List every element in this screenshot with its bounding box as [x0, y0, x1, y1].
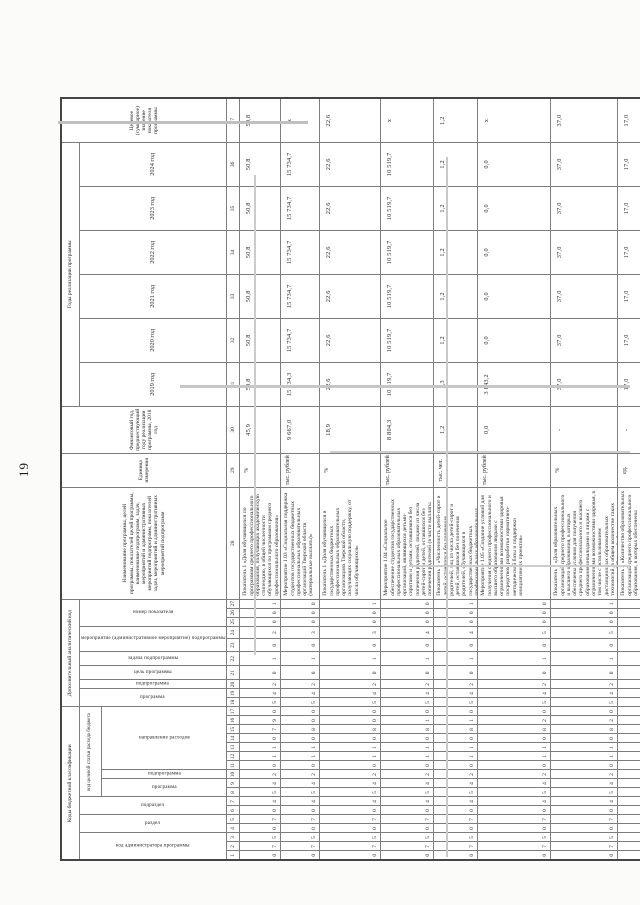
row-value-2018: 8 804,3: [381, 406, 434, 453]
row-name-text: Мероприятие 1.04 «Социальное обеспечение…: [381, 488, 433, 599]
code-digit-cell: 0: [320, 666, 381, 680]
code-digit-cell: 2: [618, 770, 640, 779]
row-value-2023: 17,0: [618, 186, 640, 230]
header-year-2021: 2021 год: [79, 274, 227, 318]
header-article-direction: направление расходов: [102, 707, 227, 770]
code-digit-cell: 5: [478, 698, 551, 707]
code-digit-cell: 8: [434, 725, 478, 734]
row-value-2018: 0,0: [478, 406, 551, 453]
row-unit-cell: тыс. рублей: [281, 453, 320, 487]
code-digit-cell: 1: [320, 652, 381, 666]
code-digit-cell: 0: [281, 599, 320, 608]
code-digit-cell: 7: [240, 725, 281, 734]
code-digit-cell: 7: [320, 842, 381, 851]
code-digit-cell: 0: [618, 734, 640, 743]
code-digit-cell: 0: [381, 851, 434, 860]
header-year-2020: 2020 год: [79, 318, 227, 362]
row-value-2021: 50,8: [240, 274, 281, 318]
column-number: 33: [227, 274, 240, 318]
column-number: 7: [227, 797, 240, 806]
code-digit-cell: 5: [618, 698, 640, 707]
column-number: 17: [227, 707, 240, 716]
header-analytic-indicator-number: номер показателя: [79, 599, 227, 626]
code-digit-cell: 0: [240, 851, 281, 860]
code-digit-cell: 1: [478, 743, 551, 752]
rotated-scan-page: 19 Коды бюджетной классификацииДополните…: [0, 0, 640, 905]
row-name-cell: Показатель 1 «Доля образовательных орган…: [551, 487, 618, 599]
row-unit-cell: %: [551, 453, 618, 487]
code-digit-cell: 4: [618, 797, 640, 806]
code-digit-cell: 5: [434, 833, 478, 842]
column-number: 14: [227, 734, 240, 743]
row-name-cell: Показатель 1 «Численность детей-сирот и …: [434, 487, 478, 599]
column-number: 21: [227, 666, 240, 680]
code-digit-cell: 0: [551, 707, 618, 716]
column-number: 20: [227, 680, 240, 689]
code-digit-cell: 4: [240, 689, 281, 698]
code-digit-cell: 0: [551, 824, 618, 833]
column-number: 12: [227, 752, 240, 761]
column-number: 25: [227, 617, 240, 626]
header-analytic-subprogram: подпрограмма: [79, 680, 227, 689]
header-admin-code: код администратора программы: [79, 833, 227, 860]
column-number: 8: [227, 788, 240, 797]
header-target-article-group: код целевой статьи расхода бюджета: [79, 707, 102, 797]
header-analytic-goal: цель программы: [79, 666, 227, 680]
column-number: 4: [227, 824, 240, 833]
code-digit-cell: 0: [381, 666, 434, 680]
row-unit-cell: %: [320, 453, 381, 487]
row-unit-cell: тыс. рублей: [478, 453, 551, 487]
row-value-2020: 37,0: [551, 318, 618, 362]
row-value-2024: 1,2: [434, 142, 478, 186]
code-digit-cell: 0: [478, 851, 551, 860]
row-value-2021: 0,0: [478, 274, 551, 318]
code-digit-cell: 0: [320, 761, 381, 770]
code-digit-cell: 4: [320, 797, 381, 806]
column-number: 24: [227, 626, 240, 639]
code-digit-cell: 0: [618, 608, 640, 617]
code-digit-cell: 4: [478, 689, 551, 698]
code-digit-cell: 0: [434, 617, 478, 626]
column-number: 3: [227, 833, 240, 842]
row-value-2023: 37,0: [551, 186, 618, 230]
header-unit-col: Единица измерения: [61, 453, 227, 487]
code-digit-cell: 0: [478, 734, 551, 743]
column-number: 19: [227, 689, 240, 698]
row-name-cell: Мероприятие 1.04 «Социальное обеспечение…: [381, 487, 434, 599]
row-name-text: Показатель 1 «Численность детей-сирот и …: [434, 488, 477, 599]
row-value-2019: 3 843,2: [478, 362, 551, 406]
row-value-2022: 15 734,7: [281, 230, 320, 274]
code-digit-cell: 5: [478, 626, 551, 639]
row-name-cell: Показатель 2 «Количество образовательных…: [618, 487, 640, 599]
row-value-2022: 0,0: [478, 230, 551, 274]
row-name-cell: Мероприятие 1.03 «Социальная поддержка с…: [281, 487, 320, 599]
code-digit-cell: 0: [618, 639, 640, 652]
code-digit-cell: 0: [320, 608, 381, 617]
row-value-2022: 17,0: [618, 230, 640, 274]
page-number: 19: [16, 462, 32, 477]
code-digit-cell: 0: [381, 639, 434, 652]
row-name-text: Мероприятие 1.03 «Социальная поддержка с…: [281, 488, 319, 599]
code-digit-cell: 2: [618, 680, 640, 689]
code-digit-cell: 2: [478, 770, 551, 779]
row-value-2019: 17,0: [618, 362, 640, 406]
code-digit-cell: 4: [618, 779, 640, 788]
row-value-2019: 37,0: [551, 362, 618, 406]
code-digit-cell: 7: [618, 842, 640, 851]
code-digit-cell: 0: [281, 608, 320, 617]
code-digit-cell: 5: [320, 833, 381, 842]
code-digit-cell: 0: [478, 806, 551, 815]
code-digit-cell: 7: [240, 842, 281, 851]
code-digit-cell: 2: [240, 626, 281, 639]
column-number: 31: [227, 362, 240, 406]
column-number: 11: [227, 761, 240, 770]
code-digit-cell: 0: [551, 617, 618, 626]
row-name-text: Показатель 2 «Количество образовательных…: [618, 488, 640, 599]
header-analytic-code-group: Дополнительный аналитический код: [61, 599, 79, 707]
header-analytic-program: программа: [79, 689, 227, 707]
code-digit-cell: 1: [618, 752, 640, 761]
code-digit-cell: 5: [240, 788, 281, 797]
code-digit-cell: 1: [551, 652, 618, 666]
row-value-2024: 10 519,7: [381, 142, 434, 186]
code-digit-cell: 9: [240, 716, 281, 725]
row-value-2022: 22,6: [320, 230, 381, 274]
code-digit-cell: 5: [551, 788, 618, 797]
code-digit-cell: 7: [240, 815, 281, 824]
code-digit-cell: 0: [551, 806, 618, 815]
row-unit-cell: %: [240, 453, 281, 487]
column-number: 13: [227, 743, 240, 752]
code-digit-cell: 0: [478, 639, 551, 652]
row-value-2022: 10 519,7: [381, 230, 434, 274]
code-digit-cell: 0: [320, 734, 381, 743]
row-value-2021: 22,6: [320, 274, 381, 318]
row-target-value: х: [381, 98, 434, 142]
row-value-2021: 17,0: [618, 274, 640, 318]
row-value-2021: 15 734,7: [281, 274, 320, 318]
code-digit-cell: 5: [434, 788, 478, 797]
header-analytic-activity: мероприятие (административное мероприяти…: [79, 626, 227, 651]
program-table-wrapper: Коды бюджетной классификацииДополнительн…: [60, 97, 640, 861]
code-digit-cell: 0: [320, 707, 381, 716]
row-target-value: 37,0: [551, 98, 618, 142]
code-digit-cell: 1: [434, 599, 478, 608]
code-digit-cell: 0: [381, 608, 434, 617]
row-value-2018: 18,9: [320, 406, 381, 453]
code-digit-cell: 0: [551, 639, 618, 652]
code-digit-cell: 1: [320, 743, 381, 752]
row-value-2020: 17,0: [618, 318, 640, 362]
row-target-value: х: [281, 98, 320, 142]
header-year-2024: 2024 год: [79, 142, 227, 186]
code-digit-cell: 1: [240, 599, 281, 608]
code-digit-cell: 2: [281, 680, 320, 689]
code-digit-cell: 4: [240, 779, 281, 788]
column-number: 26: [227, 608, 240, 617]
code-digit-cell: 2: [240, 770, 281, 779]
row-value-2022: 37,0: [551, 230, 618, 274]
code-digit-cell: 0: [478, 666, 551, 680]
code-digit-cell: 1: [240, 743, 281, 752]
code-digit-cell: 0: [240, 707, 281, 716]
code-digit-cell: 4: [281, 779, 320, 788]
code-digit-cell: 1: [281, 743, 320, 752]
code-digit-cell: 0: [281, 707, 320, 716]
row-value-2024: 17,0: [618, 142, 640, 186]
code-digit-cell: 5: [281, 833, 320, 842]
code-digit-cell: 8: [281, 725, 320, 734]
row-target-value: 22,6: [320, 98, 381, 142]
code-digit-cell: 2: [381, 770, 434, 779]
code-digit-cell: 5: [618, 833, 640, 842]
code-digit-cell: 0: [240, 734, 281, 743]
code-digit-cell: 5: [320, 788, 381, 797]
code-digit-cell: 1: [381, 752, 434, 761]
header-year-2019: 2019 год: [79, 362, 227, 406]
code-digit-cell: 0: [240, 666, 281, 680]
column-number: 28: [227, 487, 240, 599]
code-digit-cell: 4: [381, 779, 434, 788]
code-digit-cell: 2: [618, 716, 640, 725]
code-digit-cell: 5: [434, 698, 478, 707]
code-digit-cell: 0: [320, 617, 381, 626]
code-digit-cell: 5: [551, 698, 618, 707]
column-number: 30: [227, 406, 240, 453]
code-digit-cell: 4: [434, 626, 478, 639]
code-digit-cell: 2: [551, 716, 618, 725]
code-digit-cell: 2: [478, 680, 551, 689]
code-digit-cell: 0: [551, 666, 618, 680]
row-name-text: Показатель 1 «Доля обучающихся по програ…: [240, 488, 280, 599]
row-value-2024: 0,0: [478, 142, 551, 186]
column-number: 18: [227, 698, 240, 707]
code-digit-cell: 8: [478, 725, 551, 734]
code-digit-cell: 0: [618, 824, 640, 833]
header-article-program: программа: [102, 779, 227, 797]
code-digit-cell: 2: [434, 770, 478, 779]
code-digit-cell: 1: [551, 599, 618, 608]
code-digit-cell: 0: [240, 639, 281, 652]
row-value-2021: 10 519,7: [381, 274, 434, 318]
row-value-2020: 50,8: [240, 318, 281, 362]
code-digit-cell: 0: [320, 716, 381, 725]
code-digit-cell: 7: [478, 815, 551, 824]
code-digit-cell: 1: [618, 743, 640, 752]
code-digit-cell: 4: [320, 689, 381, 698]
code-digit-cell: 1: [434, 652, 478, 666]
code-digit-cell: 1: [240, 752, 281, 761]
code-digit-cell: 0: [434, 707, 478, 716]
code-digit-cell: 0: [281, 716, 320, 725]
code-digit-cell: 0: [240, 824, 281, 833]
code-digit-cell: 8: [381, 725, 434, 734]
code-digit-cell: 0: [281, 761, 320, 770]
row-value-2019: 50,8: [240, 362, 281, 406]
code-digit-cell: 2: [434, 680, 478, 689]
code-digit-cell: 3: [320, 626, 381, 639]
column-number: 9: [227, 779, 240, 788]
code-digit-cell: 4: [281, 689, 320, 698]
code-digit-cell: 0: [478, 617, 551, 626]
row-value-2023: 1,2: [434, 186, 478, 230]
code-digit-cell: 4: [478, 797, 551, 806]
code-digit-cell: 1: [478, 652, 551, 666]
code-digit-cell: 0: [320, 806, 381, 815]
row-name-cell: Мероприятие 1.05 «Создание условий для п…: [478, 487, 551, 599]
code-digit-cell: 7: [434, 842, 478, 851]
code-digit-cell: 0: [434, 666, 478, 680]
code-digit-cell: 0: [478, 599, 551, 608]
row-value-2023: 0,0: [478, 186, 551, 230]
code-digit-cell: 8: [320, 725, 381, 734]
code-digit-cell: 7: [281, 815, 320, 824]
code-digit-cell: 2: [320, 680, 381, 689]
code-digit-cell: 0: [381, 734, 434, 743]
row-target-value: х: [478, 98, 551, 142]
code-digit-cell: 0: [281, 639, 320, 652]
row-unit-cell: тыс. рублей: [381, 453, 434, 487]
header-year-2022: 2022 год: [79, 230, 227, 274]
code-digit-cell: 2: [381, 680, 434, 689]
header-years-group: Годы реализации программы: [61, 142, 79, 406]
row-unit-cell: тыс. чел.: [434, 453, 478, 487]
code-digit-cell: 5: [281, 698, 320, 707]
column-number: 32: [227, 318, 240, 362]
code-digit-cell: 5: [478, 788, 551, 797]
row-value-2019: 15 734,3: [281, 362, 320, 406]
header-podrazdel: подраздел: [79, 797, 227, 815]
code-digit-cell: 7: [281, 842, 320, 851]
code-digit-cell: 0: [281, 851, 320, 860]
code-digit-cell: 0: [551, 851, 618, 860]
code-digit-cell: 0: [320, 639, 381, 652]
row-value-2019: 10 519,7: [381, 362, 434, 406]
row-target-value: 50,8: [240, 98, 281, 142]
code-digit-cell: 1: [381, 743, 434, 752]
code-digit-cell: 7: [381, 842, 434, 851]
row-value-2024: 50,8: [240, 142, 281, 186]
code-digit-cell: 2: [551, 770, 618, 779]
code-digit-cell: 0: [618, 761, 640, 770]
row-name-cell: Показатель 1 «Доля обучающихся по програ…: [240, 487, 281, 599]
code-digit-cell: 5: [381, 698, 434, 707]
code-digit-cell: 0: [381, 824, 434, 833]
code-digit-cell: 0: [618, 806, 640, 815]
row-value-2023: 22,6: [320, 186, 381, 230]
column-number: 5: [227, 815, 240, 824]
code-digit-cell: 4: [551, 689, 618, 698]
code-digit-cell: 2: [281, 770, 320, 779]
row-value-2023: 10 519,7: [381, 186, 434, 230]
code-digit-cell: 1: [281, 652, 320, 666]
code-digit-cell: 0: [381, 617, 434, 626]
row-value-2019: 22,6: [320, 362, 381, 406]
code-digit-cell: 0: [618, 617, 640, 626]
code-digit-cell: 0: [281, 666, 320, 680]
column-number: 35: [227, 186, 240, 230]
code-digit-cell: 4: [434, 689, 478, 698]
column-number: 10: [227, 770, 240, 779]
code-digit-cell: 5: [381, 788, 434, 797]
code-digit-cell: 0: [381, 599, 434, 608]
code-digit-cell: 1: [434, 743, 478, 752]
header-razdel: раздел: [79, 815, 227, 833]
code-digit-cell: 0: [478, 707, 551, 716]
code-digit-cell: 4: [381, 797, 434, 806]
code-digit-cell: 0: [478, 608, 551, 617]
row-value-2020: 1,2: [434, 318, 478, 362]
row-name-text: Показатель 1 «Доля образовательных орган…: [551, 488, 617, 599]
program-characteristics-table: Коды бюджетной классификацииДополнительн…: [60, 97, 640, 861]
code-digit-cell: 0: [478, 824, 551, 833]
code-digit-cell: 7: [434, 815, 478, 824]
header-target-col: Целевое (суммарное) значение показателя …: [61, 98, 227, 142]
code-digit-cell: 0: [434, 734, 478, 743]
code-digit-cell: 0: [240, 608, 281, 617]
code-digit-cell: 5: [478, 833, 551, 842]
row-value-2018: -: [551, 406, 618, 453]
column-number: 16: [227, 716, 240, 725]
code-digit-cell: 0: [551, 761, 618, 770]
column-number: 2: [227, 842, 240, 851]
code-digit-cell: 0: [434, 806, 478, 815]
code-digit-cell: 0: [281, 734, 320, 743]
code-digit-cell: 4: [281, 797, 320, 806]
code-digit-cell: 1: [434, 716, 478, 725]
code-digit-cell: 5: [618, 626, 640, 639]
code-digit-cell: 4: [618, 689, 640, 698]
row-value-2020: 22,6: [320, 318, 381, 362]
header-analytic-task: задача подпрограммы: [79, 652, 227, 666]
code-digit-cell: 4: [320, 779, 381, 788]
header-budget-codes-group: Коды бюджетной классификации: [61, 707, 79, 860]
code-digit-cell: 1: [551, 752, 618, 761]
code-digit-cell: 1: [434, 752, 478, 761]
row-value-2022: 50,8: [240, 230, 281, 274]
code-digit-cell: 1: [240, 652, 281, 666]
code-digit-cell: 0: [240, 761, 281, 770]
code-digit-cell: 1: [478, 752, 551, 761]
code-digit-cell: 5: [281, 788, 320, 797]
code-digit-cell: 1: [381, 716, 434, 725]
code-digit-cell: 0: [240, 806, 281, 815]
row-name-text: Мероприятие 1.05 «Создание условий для п…: [478, 488, 550, 599]
code-digit-cell: 0: [434, 608, 478, 617]
code-digit-cell: 2: [618, 599, 640, 608]
row-value-2024: 37,0: [551, 142, 618, 186]
code-digit-cell: 5: [618, 788, 640, 797]
row-value-2018: -: [618, 406, 640, 453]
code-digit-cell: 4: [551, 797, 618, 806]
code-digit-cell: 0: [434, 851, 478, 860]
code-digit-cell: 0: [381, 761, 434, 770]
code-digit-cell: 5: [240, 833, 281, 842]
header-name-col: Наименование программы, целей программы,…: [61, 487, 227, 599]
row-value-2018: 1,2: [434, 406, 478, 453]
column-number: 36: [227, 142, 240, 186]
row-value-2024: 22,6: [320, 142, 381, 186]
code-digit-cell: 4: [381, 689, 434, 698]
row-target-value: 17,0: [618, 98, 640, 142]
row-target-value: 1,2: [434, 98, 478, 142]
code-digit-cell: 5: [551, 626, 618, 639]
code-digit-cell: 0: [381, 707, 434, 716]
row-value-2023: 50,8: [240, 186, 281, 230]
